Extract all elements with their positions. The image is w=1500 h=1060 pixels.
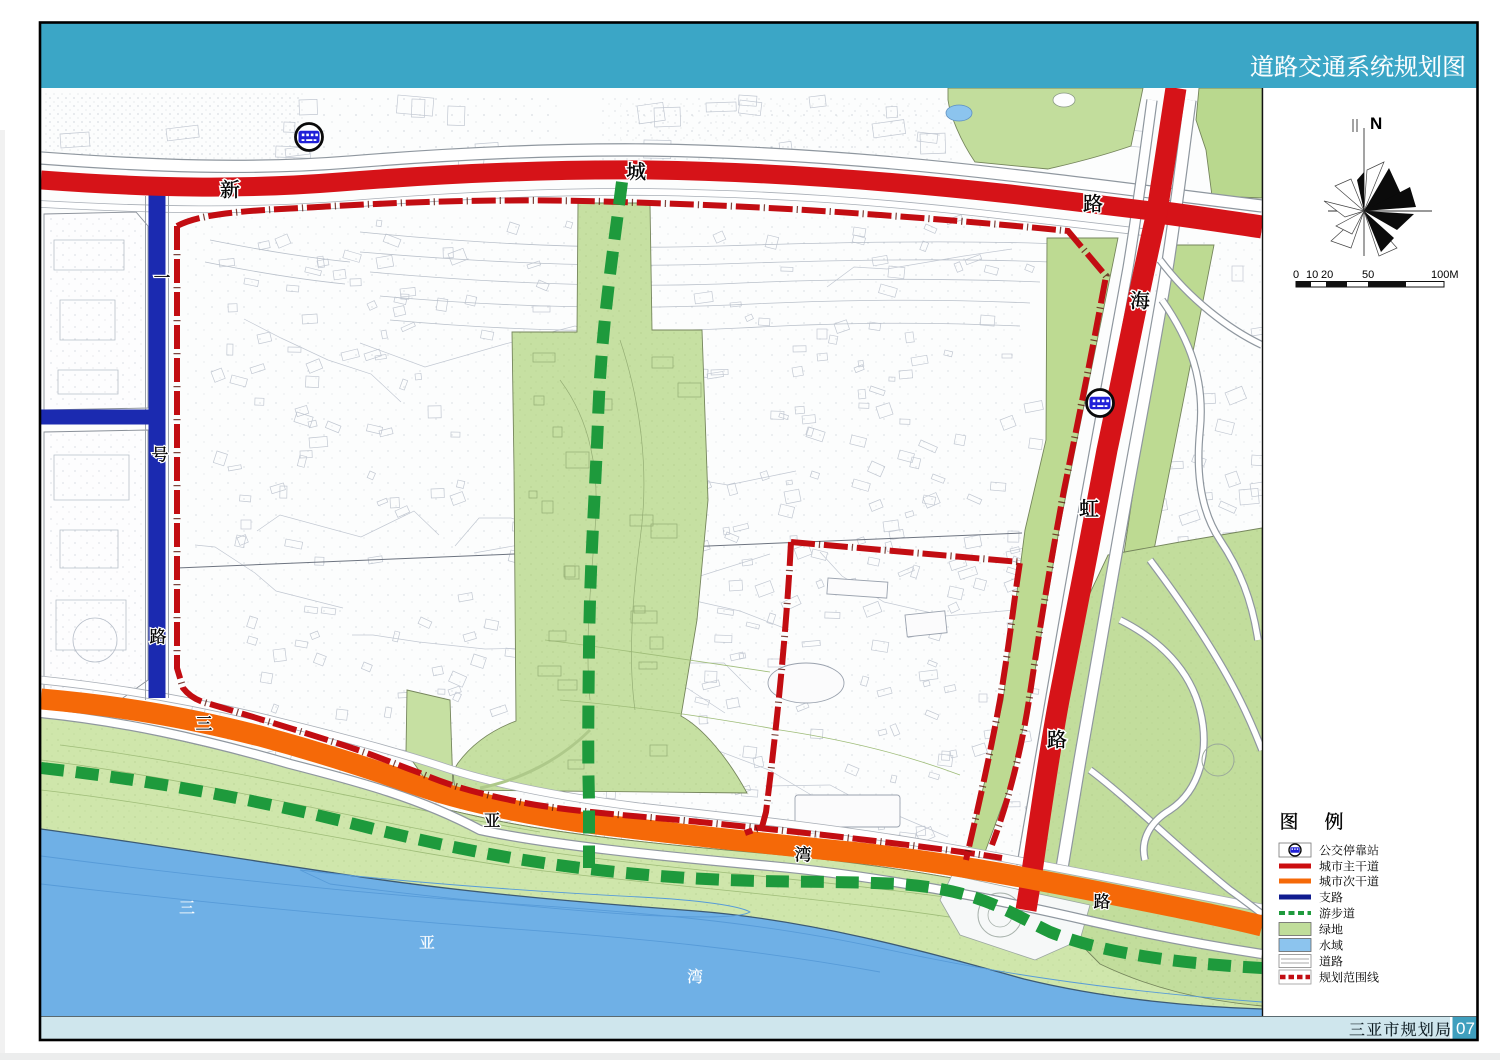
svg-text:50: 50: [1362, 269, 1374, 281]
svg-text:100M: 100M: [1431, 269, 1459, 281]
svg-text:10: 10: [1306, 269, 1318, 281]
svg-text:N: N: [1370, 114, 1382, 133]
svg-text:20: 20: [1321, 269, 1333, 281]
svg-text:0: 0: [1293, 269, 1299, 281]
svg-text:07: 07: [1456, 1019, 1475, 1038]
